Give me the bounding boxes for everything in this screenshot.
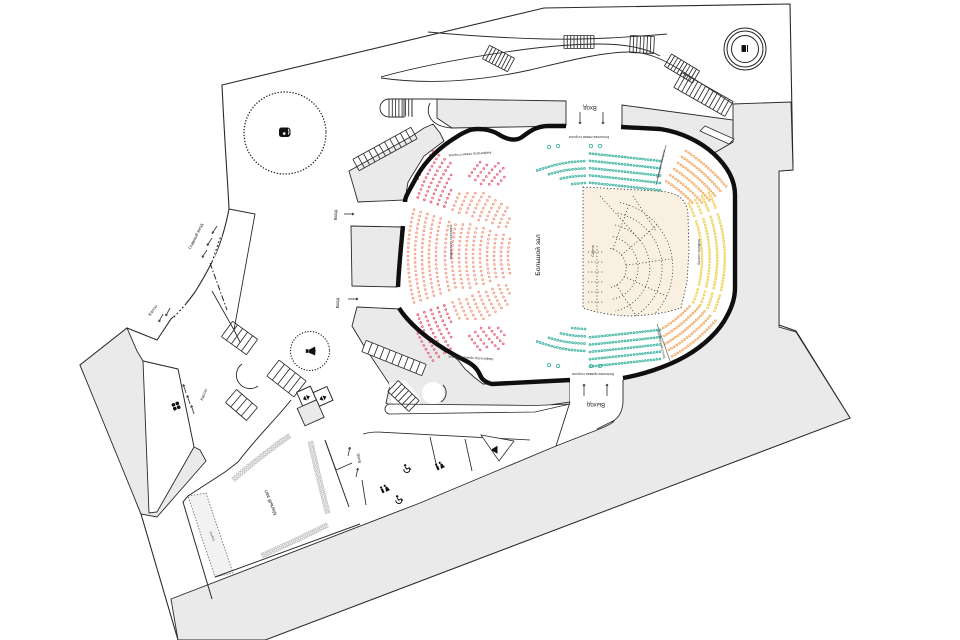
svg-text:Главный вход: Главный вход bbox=[187, 222, 204, 250]
svg-text:Балкон середина: Балкон середина bbox=[697, 239, 701, 265]
svg-text:Большой зал: Большой зал bbox=[534, 234, 542, 275]
svg-text:Сцена: Сцена bbox=[590, 244, 595, 257]
svg-text:Кассы: Кассы bbox=[147, 304, 158, 317]
svg-text:Амфитеатр середина: Амфитеатр середина bbox=[449, 225, 453, 260]
svg-text:Вход: Вход bbox=[335, 297, 340, 308]
svg-text:Выход: Выход bbox=[587, 401, 605, 407]
svg-text:Бельэтаж левая сторона: Бельэтаж левая сторона bbox=[569, 135, 609, 139]
svg-text:Вход: Вход bbox=[333, 209, 338, 220]
svg-text:Вход: Вход bbox=[583, 104, 597, 110]
svg-text:Бельэтаж правая сторона: Бельэтаж правая сторона bbox=[572, 372, 614, 376]
